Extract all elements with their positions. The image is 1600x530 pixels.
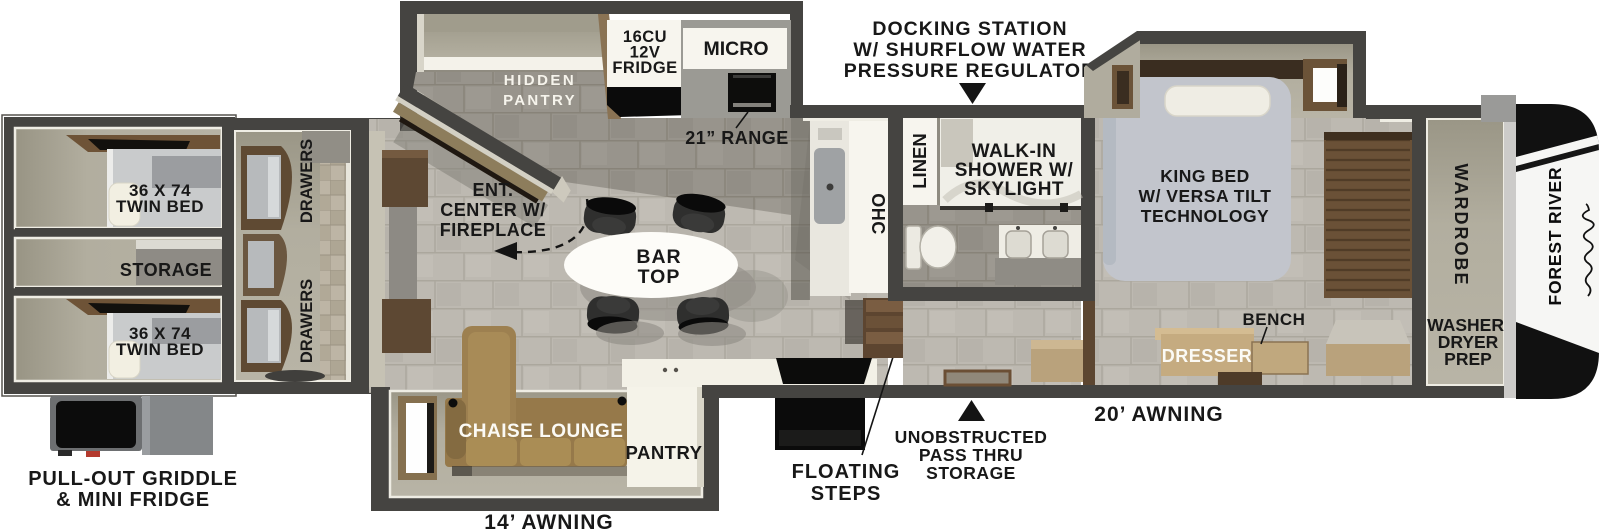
svg-text:20’ AWNING: 20’ AWNING — [1094, 403, 1223, 426]
svg-text:& MINI FRIDGE: & MINI FRIDGE — [56, 489, 210, 511]
svg-text:STORAGE: STORAGE — [120, 260, 212, 280]
svg-text:PANTRY: PANTRY — [503, 92, 577, 109]
svg-text:BAR: BAR — [636, 246, 681, 268]
svg-text:TWIN BED: TWIN BED — [116, 340, 204, 359]
svg-text:PREP: PREP — [1444, 349, 1492, 369]
svg-text:STEPS: STEPS — [811, 483, 882, 505]
svg-text:SHOWER W/: SHOWER W/ — [955, 160, 1074, 181]
svg-text:PULL-OUT GRIDDLE: PULL-OUT GRIDDLE — [28, 468, 237, 490]
svg-text:KING BED: KING BED — [1160, 166, 1250, 186]
svg-text:CENTER W/: CENTER W/ — [440, 200, 546, 220]
svg-text:PRESSURE REGULATOR: PRESSURE REGULATOR — [844, 60, 1096, 82]
svg-text:W/ SHURFLOW WATER: W/ SHURFLOW WATER — [853, 39, 1086, 61]
svg-text:LINEN: LINEN — [909, 133, 930, 189]
svg-text:FIREPLACE: FIREPLACE — [440, 220, 547, 240]
svg-text:TOP: TOP — [638, 266, 681, 288]
svg-text:WARDROBE: WARDROBE — [1451, 164, 1471, 287]
svg-text:DRAWERS: DRAWERS — [298, 139, 316, 223]
svg-text:WALK-IN: WALK-IN — [972, 141, 1057, 162]
svg-text:DRESSER: DRESSER — [1162, 346, 1253, 366]
svg-text:TWIN BED: TWIN BED — [116, 197, 204, 216]
svg-text:OHC: OHC — [868, 193, 888, 235]
svg-text:PASS THRU: PASS THRU — [919, 445, 1023, 465]
svg-text:STORAGE: STORAGE — [926, 463, 1016, 483]
svg-text:W/ VERSA TILT: W/ VERSA TILT — [1139, 186, 1272, 206]
svg-text:14’ AWNING: 14’ AWNING — [484, 511, 613, 530]
svg-text:FRIDGE: FRIDGE — [612, 59, 677, 77]
svg-text:FOREST RIVER: FOREST RIVER — [1545, 167, 1565, 306]
svg-text:SKYLIGHT: SKYLIGHT — [964, 179, 1064, 200]
svg-text:ENT.: ENT. — [472, 180, 513, 200]
svg-text:21” RANGE: 21” RANGE — [685, 128, 789, 148]
svg-text:CHAISE LOUNGE: CHAISE LOUNGE — [459, 421, 624, 442]
svg-text:FLOATING: FLOATING — [792, 461, 901, 483]
svg-text:TECHNOLOGY: TECHNOLOGY — [1141, 206, 1269, 226]
svg-text:DRAWERS: DRAWERS — [298, 279, 316, 363]
svg-text:UNOBSTRUCTED: UNOBSTRUCTED — [895, 427, 1048, 447]
svg-text:BENCH: BENCH — [1243, 310, 1306, 329]
svg-text:PANTRY: PANTRY — [626, 442, 703, 463]
svg-text:DOCKING STATION: DOCKING STATION — [872, 18, 1067, 40]
svg-text:MICRO: MICRO — [704, 38, 769, 60]
svg-text:HIDDEN: HIDDEN — [504, 72, 577, 89]
